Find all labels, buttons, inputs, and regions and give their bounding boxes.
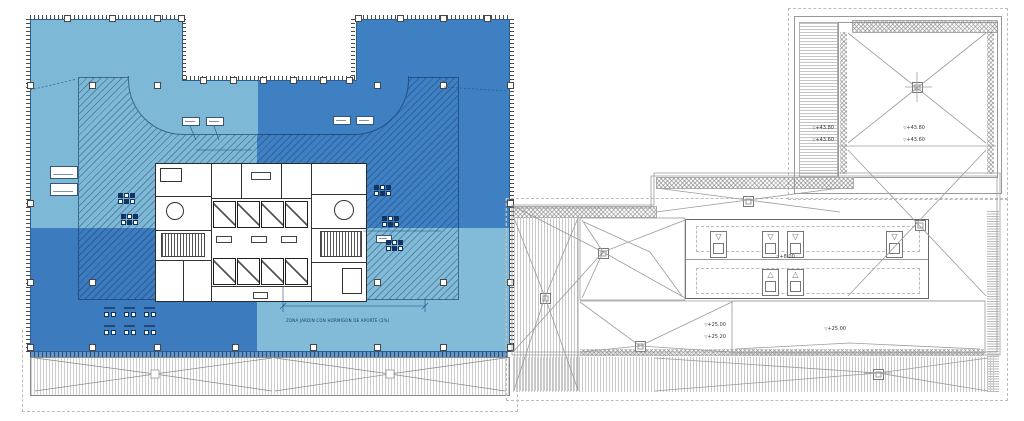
upper-roof-field [838,22,998,178]
spot-annotation-group [124,325,135,327]
column-marker [178,15,185,22]
column-marker [200,77,207,84]
keynote-tag [356,116,374,125]
building-core [155,163,367,302]
gravel-band-right [987,32,994,174]
roof-drain [635,341,646,352]
column-marker [154,82,161,89]
keynote-tag [206,117,224,126]
level-label-grating: ▽+43.80 ▽+43.60 [806,119,834,149]
spot-marker [144,312,149,317]
fan-symbol-icon: △ [788,270,803,280]
column-marker [507,82,514,89]
equipment-symbol [386,191,391,196]
column-marker [507,200,514,207]
column-marker [290,77,297,84]
equipment-symbol [382,216,387,221]
elevator-cell [213,258,236,285]
roof-drain [540,293,551,304]
roof-drain [743,196,754,207]
equipment-symbol [133,214,138,219]
garden-zone-note: ZONA JARDIN CON HORMIGON DE APORTE (2%) [286,318,390,323]
column-marker [230,77,237,84]
spot-marker [124,330,129,335]
column-marker [89,344,96,351]
equipment-symbol [374,185,379,190]
level-label-plant: ▽+8.00 [770,248,795,266]
equipment-symbol [394,222,399,227]
site-boundary-dashed [22,330,518,412]
equipment-symbol [121,214,126,219]
equipment-symbol [118,199,123,204]
fan-symbol-icon: ▽ [711,232,726,242]
podium-south-louver-strip [513,357,996,392]
column-marker [374,344,381,351]
roof-drain [873,369,884,380]
spot-annotation-group [144,307,155,309]
equipment-symbol [124,193,129,198]
core-lobby-band [211,286,311,302]
column-marker [27,344,34,351]
equipment-symbol [130,199,135,204]
level-label-upper-roof: ▽+43.80 ▽+43.60 [897,119,925,149]
keynote-tag [50,166,78,179]
column-marker [440,344,447,351]
gravel-band-left [840,32,847,174]
elevator-cell [261,258,284,285]
spot-marker [151,330,156,335]
core-left-wing [156,164,212,301]
fan-symbol-icon: △ [763,270,778,280]
column-marker [440,82,447,89]
column-marker [374,279,381,286]
equipment-symbol [386,246,391,251]
column-marker [109,15,116,22]
spot-annotation-group [104,307,115,309]
equipment-symbol [388,222,393,227]
spot-annotation-group [104,325,115,327]
roof-drain [598,248,609,259]
equipment-symbol [130,193,135,198]
fan-symbol-icon: ▽ [887,232,902,242]
core-machine-rooms [211,164,311,199]
rooftop-fan-unit: △ [762,269,779,296]
level-label-slab-right: ▽+25.00 [818,320,846,338]
facade-edge-notch-bottom [182,76,355,80]
column-marker [89,279,96,286]
stair-flight [320,231,362,257]
column-marker [355,15,362,22]
keynote-tag [50,183,78,196]
rooftop-fan-unit: △ [787,269,804,296]
equipment-symbol [118,193,123,198]
elevator-cell [285,201,308,228]
facade-edge-right [510,19,514,352]
stair-circulation-symbol [334,200,354,220]
spot-marker [131,330,136,335]
column-marker [440,279,447,286]
core-right-wing [311,164,367,301]
equipment-symbol [392,240,397,245]
column-marker [397,15,404,22]
stair-circulation-symbol [166,202,184,220]
rooftop-fan-unit: ▽ [886,231,903,258]
column-marker [484,15,491,22]
facade-edge-notch-right [351,19,355,80]
roof-drain [912,82,923,93]
column-marker [346,77,353,84]
elevator-cell [213,201,236,228]
spot-marker [124,312,129,317]
equipment-symbol [374,191,379,196]
spot-marker [151,312,156,317]
equipment-symbol [388,216,393,221]
spot-marker [111,312,116,317]
elevator-cell [237,258,260,285]
column-marker [27,200,34,207]
column-marker [89,82,96,89]
column-marker [64,15,71,22]
equipment-symbol [386,185,391,190]
facade-edge-left [26,19,30,352]
fan-symbol-icon: ▽ [763,232,778,242]
equipment-symbol [127,214,132,219]
stair-flight [161,233,205,257]
level-label-slab-left: ▽+25.00 ▽+25.20 [698,316,726,346]
keynote-tag [333,116,351,125]
column-marker [27,82,34,89]
gravel-band-step-right [656,177,854,189]
elevator-cell [285,258,308,285]
plate-notch [182,19,357,81]
elevator-cell [261,201,284,228]
spot-marker [111,330,116,335]
elevator-cell [237,201,260,228]
column-marker [154,15,161,22]
equipment-symbol [386,240,391,245]
spot-marker [144,330,149,335]
column-marker [374,82,381,89]
column-marker [154,344,161,351]
facade-edge-notch-left [182,19,186,80]
equipment-symbol [392,246,397,251]
spot-marker [104,312,109,317]
spot-annotation-group [124,307,135,309]
equipment-symbol [394,216,399,221]
equipment-symbol [121,220,126,225]
column-marker [320,77,327,84]
column-marker [507,279,514,286]
keynote-tag [182,117,200,126]
equipment-symbol [398,240,403,245]
column-marker [440,15,447,22]
spot-marker [131,312,136,317]
roof-plan-drawing: ▽+43.80 ▽+43.60 ▽+43.80 ▽+43.60 ▽+25.00 … [0,0,1024,421]
equipment-symbol [380,191,385,196]
column-marker [232,344,239,351]
roof-drain [915,220,926,231]
equipment-symbol [382,222,387,227]
equipment-symbol [124,199,129,204]
roof-grating-strip [799,22,838,178]
equipment-symbol [133,220,138,225]
column-marker [507,344,514,351]
rooftop-fan-unit: ▽ [710,231,727,258]
column-marker [310,344,317,351]
equipment-symbol [380,185,385,190]
equipment-symbol [127,220,132,225]
equipment-symbol [398,246,403,251]
spot-annotation-group [144,325,155,327]
spot-marker [104,330,109,335]
plate-south-facade-band [30,352,508,357]
column-marker [27,279,34,286]
fan-symbol-icon: ▽ [788,232,803,242]
column-marker [260,77,267,84]
